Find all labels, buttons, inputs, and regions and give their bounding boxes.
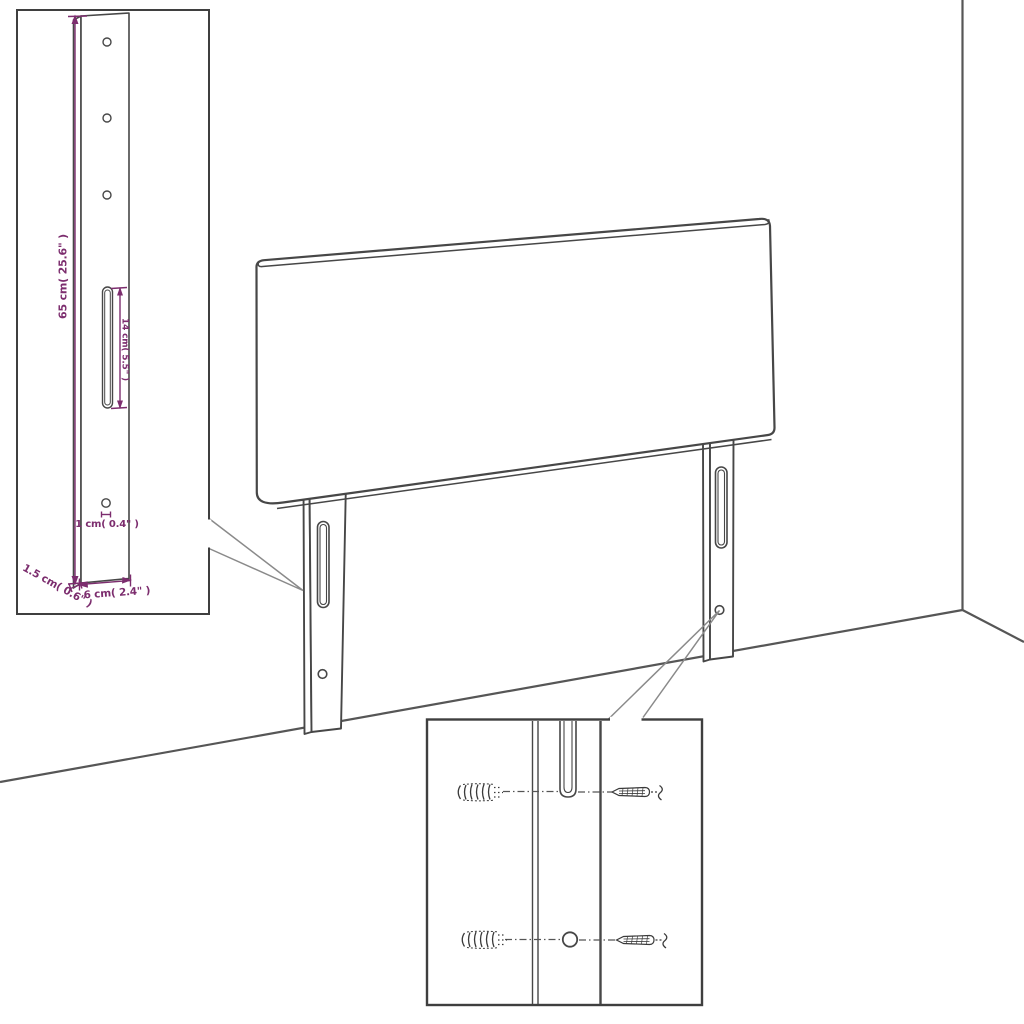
- hole-diameter-dimension-label: 1 cm( 0.4" ): [52, 518, 162, 531]
- detail-leg-bottom-hole: [102, 499, 110, 507]
- assembly-diagram: 65 cm( 25.6" ) 14 cm( 5.5" ) 1 cm( 0.4" …: [0, 0, 1024, 1024]
- leg-height-dimension-label: 65 cm( 25.6" ): [57, 222, 70, 332]
- callout-lines: [209, 519, 720, 720]
- left-leg-slot-inner: [320, 525, 327, 605]
- hardware-detail-callout-wedge: [609, 611, 720, 720]
- headboard-panel: [256, 219, 774, 509]
- detail-leg-hole-1: [103, 38, 111, 46]
- floor-wall-line-right: [963, 610, 1024, 642]
- detail-leg-hole-3: [103, 191, 111, 199]
- slot-length-dimension-label: 14 cm( 5.5" ): [118, 305, 131, 395]
- right-leg-slot-inner: [718, 470, 725, 545]
- hardware-detail-inset: [427, 720, 702, 1006]
- detail-leg-slot-inner: [105, 290, 111, 405]
- leg-detail-callout-wedge: [209, 519, 303, 591]
- headboard-left-leg: [304, 481, 347, 735]
- left-leg-screw-hole: [318, 670, 327, 679]
- detail-leg-hole-2: [103, 114, 111, 122]
- headboard-front-face: [256, 219, 774, 504]
- diagram-canvas: [0, 0, 1024, 1024]
